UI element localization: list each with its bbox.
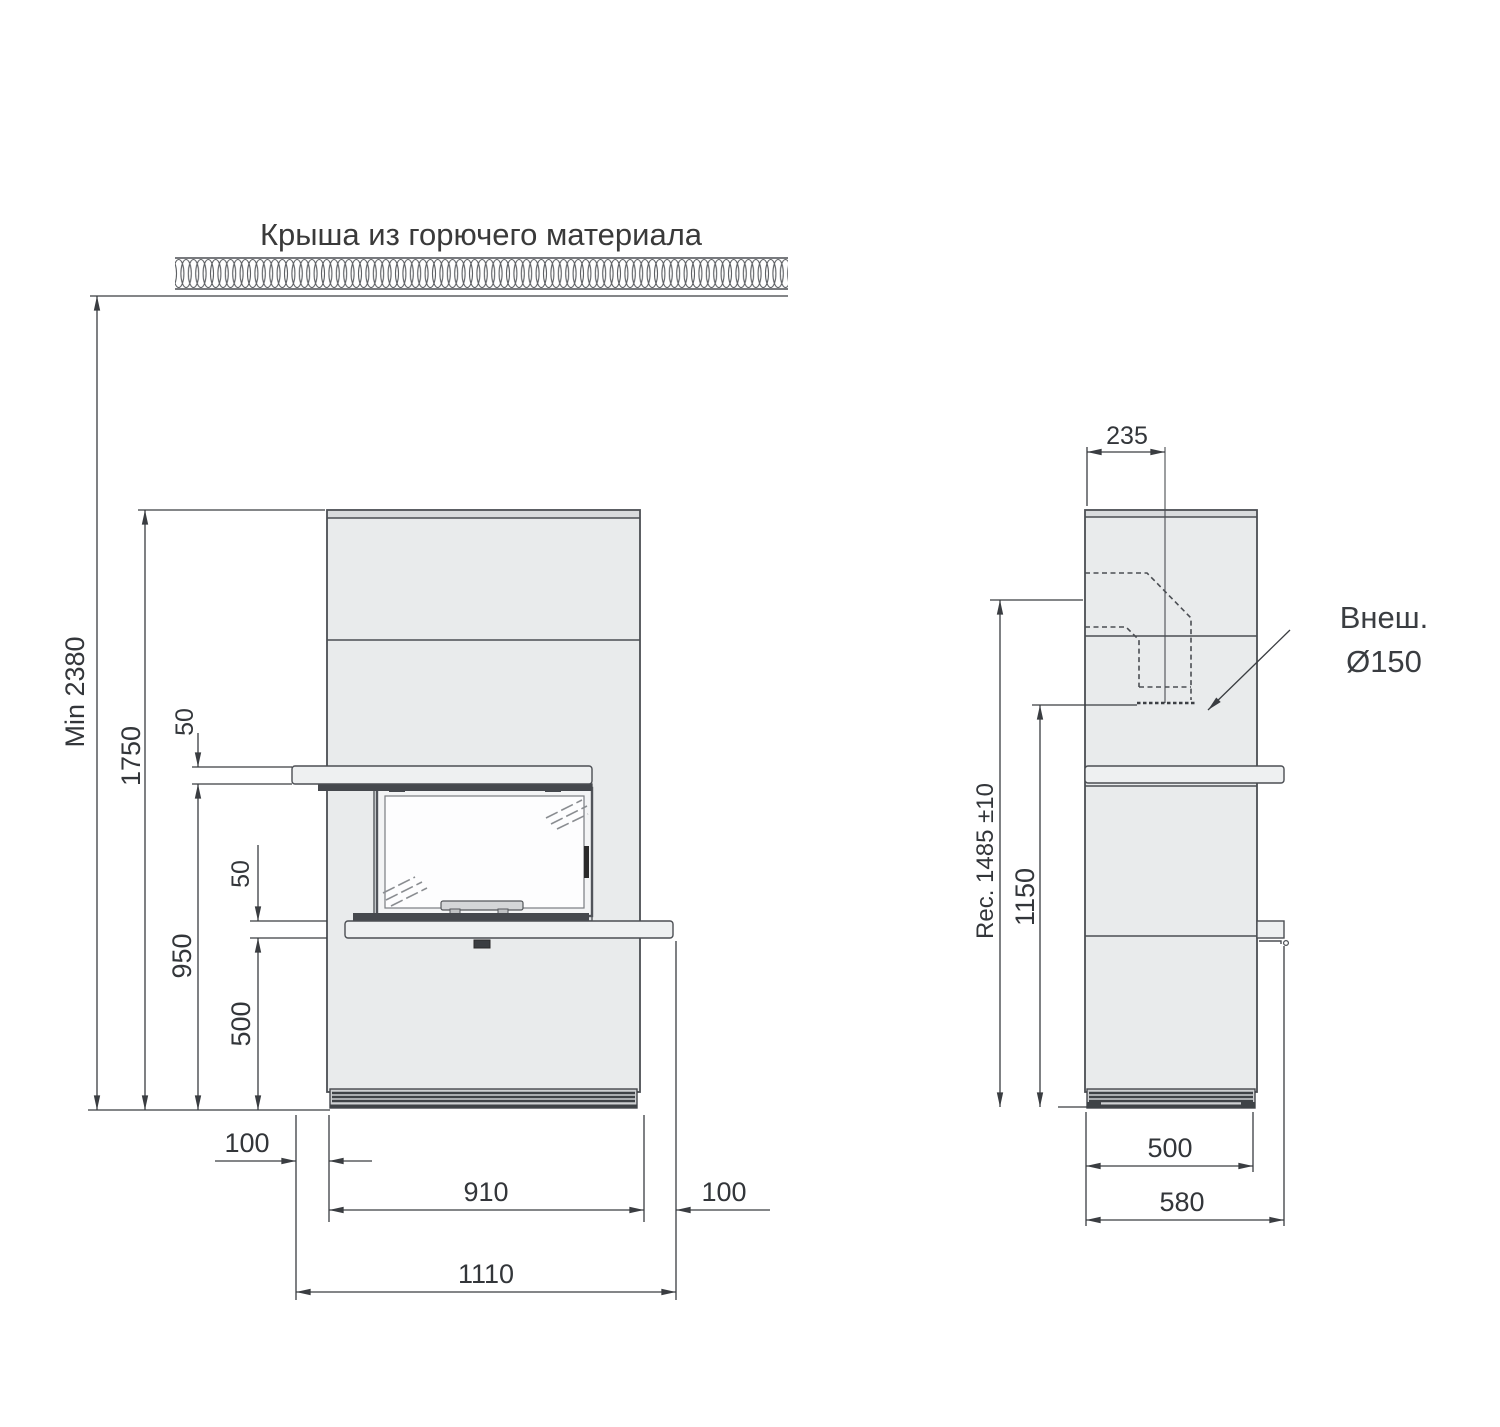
dim-1110: 1110 — [296, 1259, 676, 1292]
dim-label-950: 950 — [167, 933, 197, 978]
dim-rec-1485: Rec. 1485 ±10 — [972, 600, 1083, 1107]
fireplace-installation-drawing: Крыша из горючего материала — [0, 0, 1500, 1427]
dim-label-100-right: 100 — [701, 1177, 746, 1207]
dim-500-front: 500 — [226, 938, 258, 1110]
dim-910: 910 — [329, 1177, 644, 1210]
dim-50-hearth: 50 — [227, 845, 327, 938]
door-latch — [584, 846, 589, 878]
dim-235: 235 — [1087, 422, 1165, 506]
side-plinth-grille — [1087, 1089, 1255, 1108]
mantel-shadow-strip — [318, 784, 592, 791]
hearth-latch — [474, 940, 490, 948]
dim-100-right: 100 — [676, 1177, 770, 1210]
hearth-shelf-pin — [1284, 941, 1289, 946]
dim-label-500-front: 500 — [226, 1001, 256, 1046]
dim-min-2380: Min 2380 — [60, 296, 97, 1110]
dim-label-235: 235 — [1106, 422, 1148, 450]
dim-100-left: 100 — [215, 1128, 372, 1161]
dim-label-rec-1485: Rec. 1485 ±10 — [972, 783, 999, 939]
hearth-shelf-side — [1257, 921, 1284, 938]
dim-580: 580 — [1086, 1187, 1284, 1220]
hearth-shelf-front — [345, 921, 673, 938]
hearth-shelf-lip — [1259, 941, 1281, 944]
front-top-band — [328, 511, 639, 518]
dim-label-50-mantel: 50 — [171, 708, 199, 736]
roof-section: Крыша из горючего материала — [90, 217, 788, 296]
front-view — [292, 510, 673, 1108]
dim-label-1750: 1750 — [116, 726, 146, 786]
side-view — [1085, 447, 1288, 1108]
firebox-bottom-strip — [353, 913, 589, 921]
dim-label-500-side: 500 — [1147, 1133, 1192, 1163]
dim-1750: 1750 — [116, 510, 146, 1110]
mantel-shelf-front — [292, 766, 592, 784]
dim-label-min-2380: Min 2380 — [60, 636, 90, 747]
front-plinth-grille — [330, 1089, 637, 1108]
dim-label-1150: 1150 — [1010, 868, 1040, 926]
side-top-band — [1086, 511, 1256, 517]
dim-label-580: 580 — [1159, 1187, 1204, 1217]
roof-insulation-hatch — [175, 258, 788, 289]
dim-label-50-hearth: 50 — [227, 860, 255, 888]
dim-label-910: 910 — [463, 1177, 508, 1207]
firebox-glass — [385, 796, 584, 908]
drawing-canvas: Крыша из горючего материала — [0, 0, 1500, 1427]
dim-50-mantel: 50 — [171, 708, 292, 784]
dim-500-side: 500 — [1086, 1133, 1253, 1166]
dim-label-1110: 1110 — [458, 1259, 514, 1289]
dim-950: 950 — [167, 784, 198, 1110]
roof-title: Крыша из горючего материала — [260, 217, 703, 252]
flue-note-line1: Внеш. — [1340, 600, 1429, 635]
flue-note-line2: Ø150 — [1346, 644, 1422, 679]
mantel-shelf-side — [1085, 766, 1284, 783]
dim-label-100-left: 100 — [224, 1128, 269, 1158]
